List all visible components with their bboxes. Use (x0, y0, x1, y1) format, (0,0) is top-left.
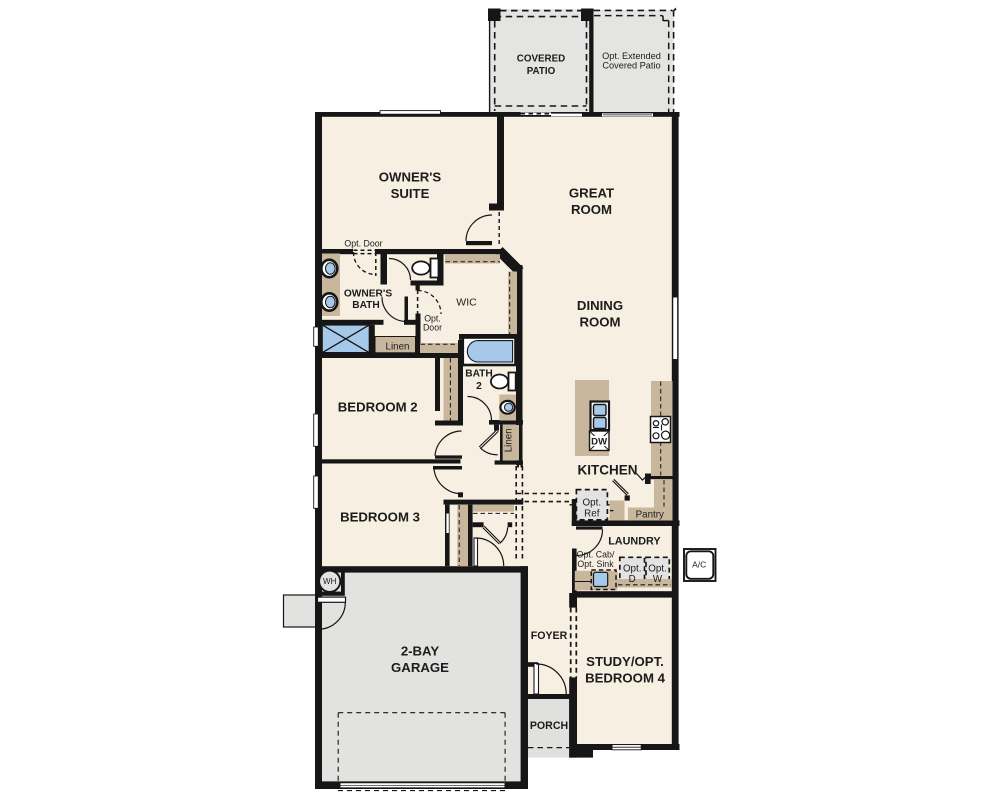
svg-text:2-BAY: 2-BAY (401, 644, 440, 659)
svg-text:Door: Door (423, 323, 442, 333)
svg-text:2: 2 (476, 381, 482, 392)
svg-text:Opt.: Opt. (583, 497, 602, 508)
svg-text:BATH: BATH (352, 300, 380, 311)
svg-text:Covered Patio: Covered Patio (602, 61, 660, 71)
svg-text:A/C: A/C (692, 559, 706, 569)
svg-text:GARAGE: GARAGE (391, 660, 449, 675)
svg-text:PATIO: PATIO (527, 66, 556, 77)
svg-text:BEDROOM 2: BEDROOM 2 (338, 400, 418, 415)
svg-text:Opt. Sink: Opt. Sink (577, 559, 614, 569)
svg-text:BEDROOM 4: BEDROOM 4 (585, 671, 666, 686)
svg-text:ROOM: ROOM (579, 315, 620, 330)
svg-text:PORCH: PORCH (530, 720, 568, 732)
svg-text:Opt.: Opt. (648, 563, 667, 574)
svg-text:Linen: Linen (504, 428, 515, 452)
svg-text:GREAT: GREAT (569, 186, 614, 201)
svg-text:WH: WH (323, 577, 337, 586)
svg-text:Opt. Door: Opt. Door (344, 238, 382, 248)
svg-text:LAUNDRY: LAUNDRY (608, 536, 661, 548)
svg-text:FOYER: FOYER (531, 630, 568, 642)
svg-text:DINING: DINING (577, 298, 623, 313)
svg-text:W: W (653, 574, 663, 585)
svg-text:DW: DW (591, 437, 607, 448)
svg-text:OWNER'S: OWNER'S (344, 289, 392, 300)
svg-text:D: D (629, 574, 636, 585)
svg-text:Ref: Ref (584, 508, 600, 519)
svg-text:Opt. Extended: Opt. Extended (602, 51, 661, 61)
svg-text:Opt.: Opt. (623, 563, 642, 574)
svg-text:KITCHEN: KITCHEN (578, 463, 638, 478)
svg-text:STUDY/OPT.: STUDY/OPT. (586, 654, 664, 669)
svg-text:BEDROOM 3: BEDROOM 3 (340, 510, 420, 525)
svg-text:WIC: WIC (456, 297, 477, 309)
svg-text:Pantry: Pantry (636, 509, 664, 520)
svg-text:Opt. Cab/: Opt. Cab/ (577, 550, 615, 560)
svg-text:SUITE: SUITE (391, 186, 430, 201)
svg-text:ROOM: ROOM (571, 202, 612, 217)
svg-text:BATH: BATH (465, 369, 493, 380)
svg-text:COVERED: COVERED (517, 54, 565, 65)
svg-text:OWNER'S: OWNER'S (379, 170, 442, 185)
svg-text:Linen: Linen (386, 342, 410, 353)
